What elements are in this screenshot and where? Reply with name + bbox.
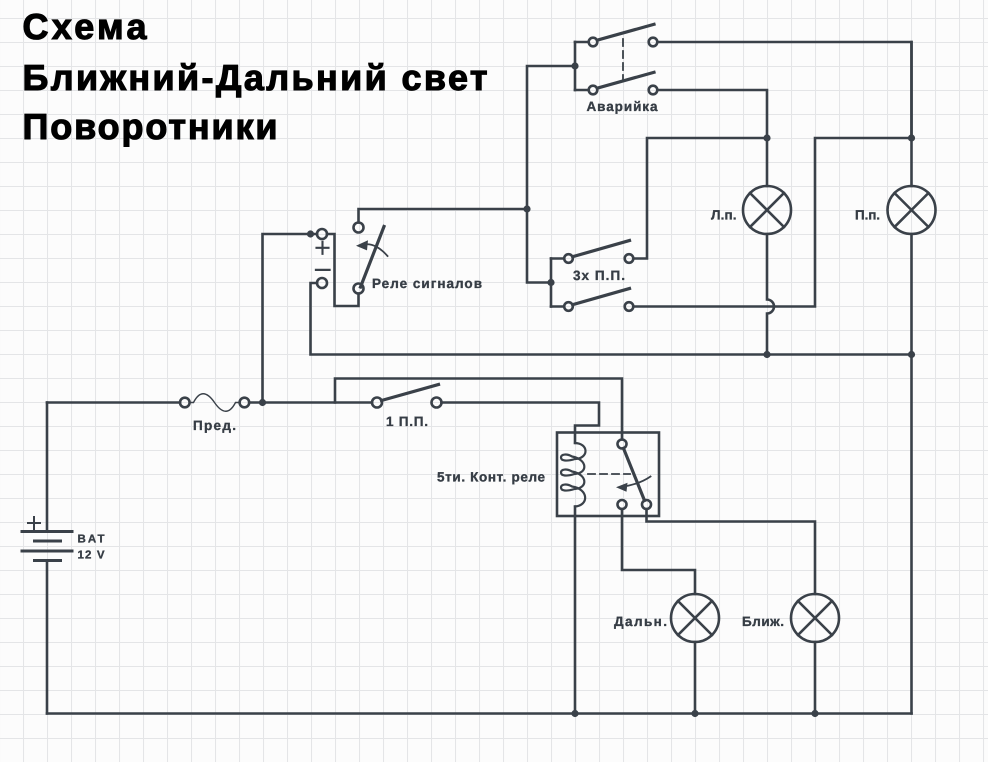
svg-text:П.п.: П.п. — [855, 208, 880, 223]
svg-text:Схема: Схема — [23, 6, 148, 47]
svg-text:Л.п.: Л.п. — [711, 208, 737, 223]
svg-text:1 П.П.: 1 П.П. — [386, 414, 428, 429]
svg-text:Дальн.: Дальн. — [614, 614, 667, 629]
svg-text:12 V: 12 V — [78, 550, 105, 562]
svg-text:BAT: BAT — [78, 534, 105, 546]
svg-text:Реле сигналов: Реле сигналов — [372, 276, 482, 291]
svg-text:Поворотники: Поворотники — [23, 106, 278, 147]
svg-text:5ти. Конт. реле: 5ти. Конт. реле — [437, 470, 545, 485]
svg-text:3х П.П.: 3х П.П. — [573, 268, 625, 283]
svg-text:Ближ.: Ближ. — [742, 614, 784, 629]
svg-text:Аварийка: Аварийка — [587, 99, 658, 114]
svg-text:Ближний-Дальний свет: Ближний-Дальний свет — [23, 57, 488, 98]
svg-text:Пред.: Пред. — [193, 418, 236, 433]
